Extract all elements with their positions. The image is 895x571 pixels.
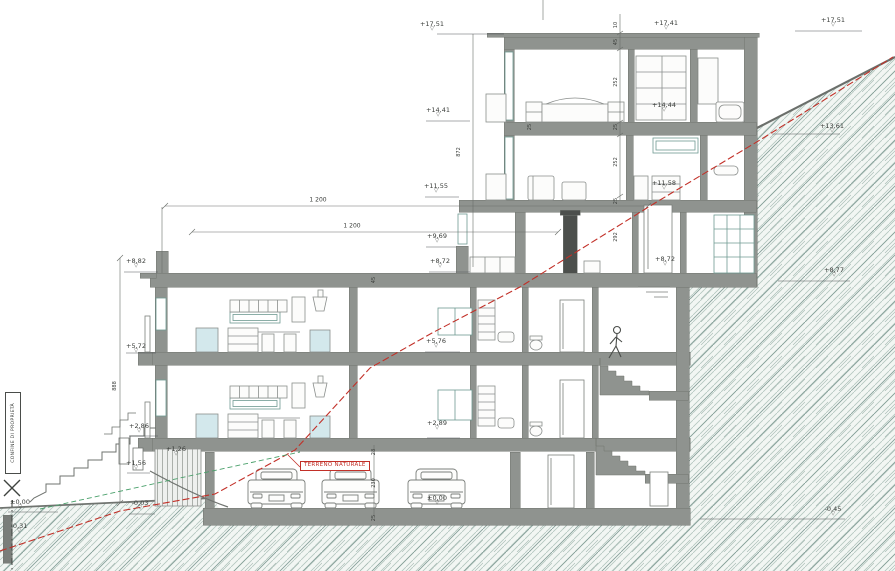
natural-terrain-label: TERRENO NATURALE <box>300 461 370 471</box>
natural-terrain-label-text: TERRENO NATURALE <box>304 462 366 468</box>
cars <box>248 469 465 508</box>
architectural-section-canvas: +17,51▽+17,41▽+17,51▽+14,41▽+14,44▽+13,6… <box>0 0 895 571</box>
section-linework <box>0 0 895 571</box>
terrain-label-leader <box>288 455 300 467</box>
property-boundary-label: CONFINE DI PROPRIETÀ <box>5 392 21 474</box>
exterior-stairs <box>30 413 156 502</box>
property-boundary-label-text: CONFINE DI PROPRIETÀ <box>11 403 16 463</box>
interior-stairs <box>596 358 649 475</box>
balcony-railings <box>145 316 150 438</box>
